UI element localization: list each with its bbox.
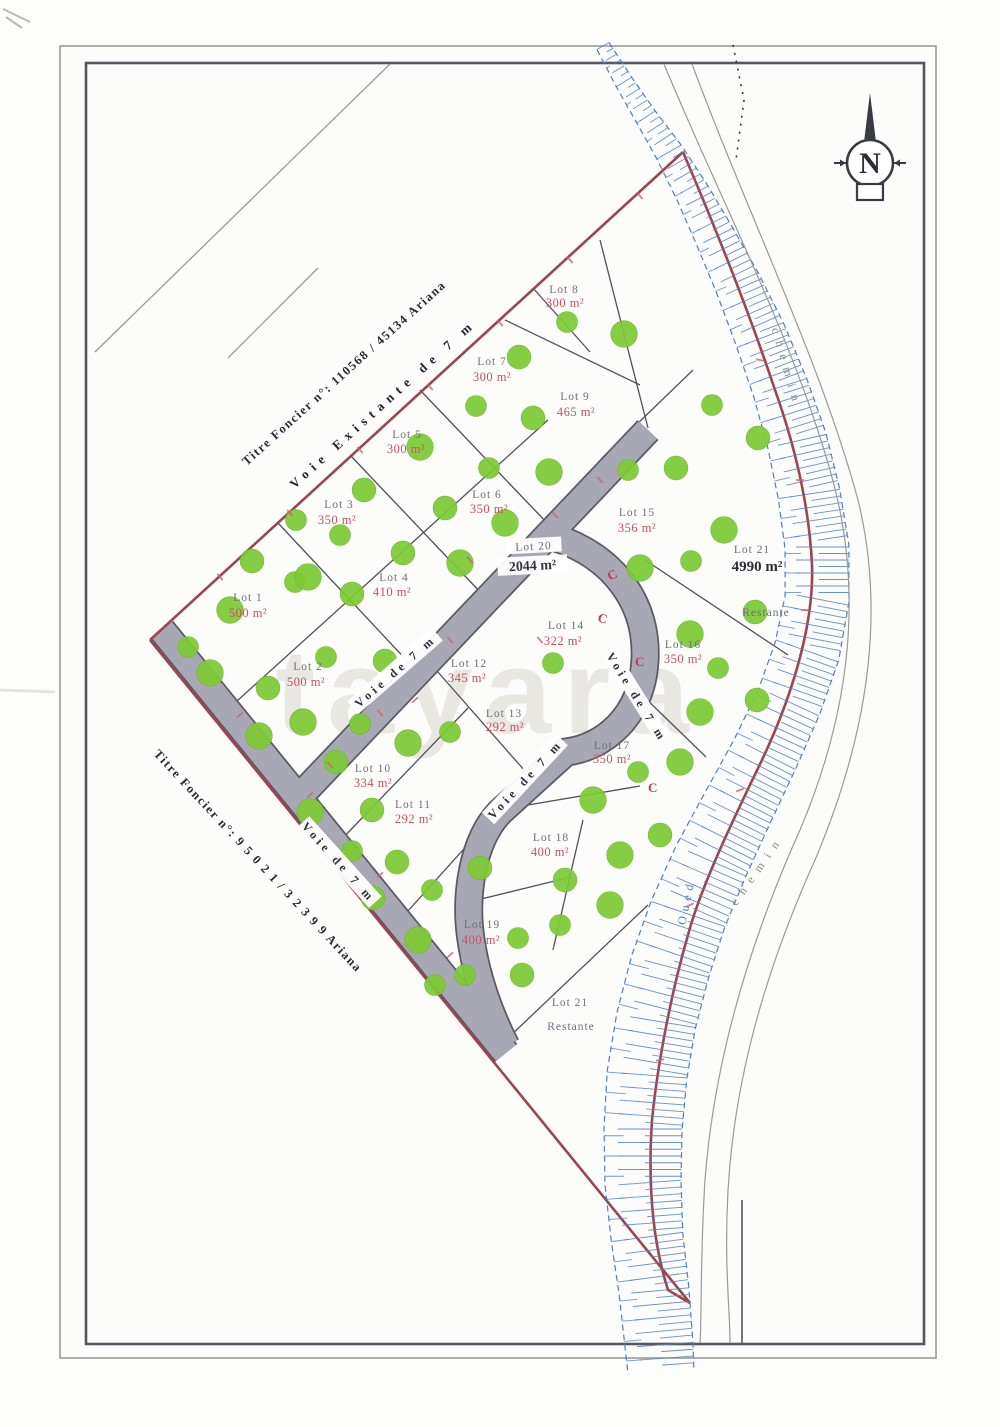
lot-area: 322 m² <box>544 634 582 648</box>
scan-smudge <box>3 9 30 28</box>
lot-name: Lot 11 <box>395 799 431 811</box>
lot-name: Lot 13 <box>486 708 522 720</box>
lot-name: Lot 9 <box>560 391 590 403</box>
lot-name: Lot 5 <box>392 429 422 441</box>
lot-name: Lot 16 <box>665 639 701 651</box>
svg-text:C: C <box>648 780 657 795</box>
lot-area: 350 m² <box>664 652 702 666</box>
svg-text:Restante: Restante <box>742 607 790 619</box>
lot-area: 292 m² <box>486 720 524 734</box>
lot-name: Lot 15 <box>619 507 655 519</box>
lot-area: 410 m² <box>373 585 411 599</box>
subdivision-plan: tayara <box>0 0 1000 1427</box>
lot-name: Lot 19 <box>464 919 500 931</box>
svg-text:Restante: Restante <box>547 1021 595 1033</box>
lot-name: Lot 18 <box>533 832 569 844</box>
svg-text:4990 m²: 4990 m² <box>732 559 783 575</box>
north-arrow-base <box>857 184 883 200</box>
svg-text:Lot 20: Lot 20 <box>515 540 552 554</box>
lot-area: 400 m² <box>531 845 569 859</box>
svg-text:Lot 21: Lot 21 <box>552 997 588 1009</box>
lot-name: Lot 8 <box>549 284 579 296</box>
svg-text:Lot 21: Lot 21 <box>734 544 770 556</box>
lot-area: 350 m² <box>593 752 631 766</box>
lot-name: Lot 1 <box>233 592 263 604</box>
lot-name: Lot 4 <box>379 572 409 584</box>
lot-area: 345 m² <box>448 671 486 685</box>
lot-name: Lot 14 <box>548 620 584 632</box>
lot-name: Lot 6 <box>472 489 502 501</box>
lot-name: Lot 10 <box>355 763 391 775</box>
lot-area: 356 m² <box>618 521 656 535</box>
lot-name: Lot 3 <box>324 499 354 511</box>
lot-area: 400 m² <box>462 933 500 947</box>
lot-area: 300 m² <box>546 296 584 310</box>
lot-area: 300 m² <box>387 442 425 456</box>
lot-area: 465 m² <box>557 405 595 419</box>
lot-area: 500 m² <box>229 606 267 620</box>
lot-name: Lot 12 <box>451 658 487 670</box>
north-label: N <box>859 147 881 180</box>
lot-area: 292 m² <box>395 812 433 826</box>
svg-text:2044 m²: 2044 m² <box>509 558 557 575</box>
lot-area: 350 m² <box>318 513 356 527</box>
scan-smudge <box>0 690 55 692</box>
plan-canvas: tayara <box>0 0 1000 1427</box>
lot-area: 500 m² <box>287 675 325 689</box>
svg-text:C: C <box>635 654 644 669</box>
lot-name: Lot 7 <box>477 356 507 368</box>
lot-name: Lot 2 <box>293 661 323 673</box>
lot-name: Lot 17 <box>594 740 630 752</box>
lot-area: 300 m² <box>473 370 511 384</box>
lot-area: 334 m² <box>354 776 392 790</box>
lot-area: 350 m² <box>470 502 508 516</box>
